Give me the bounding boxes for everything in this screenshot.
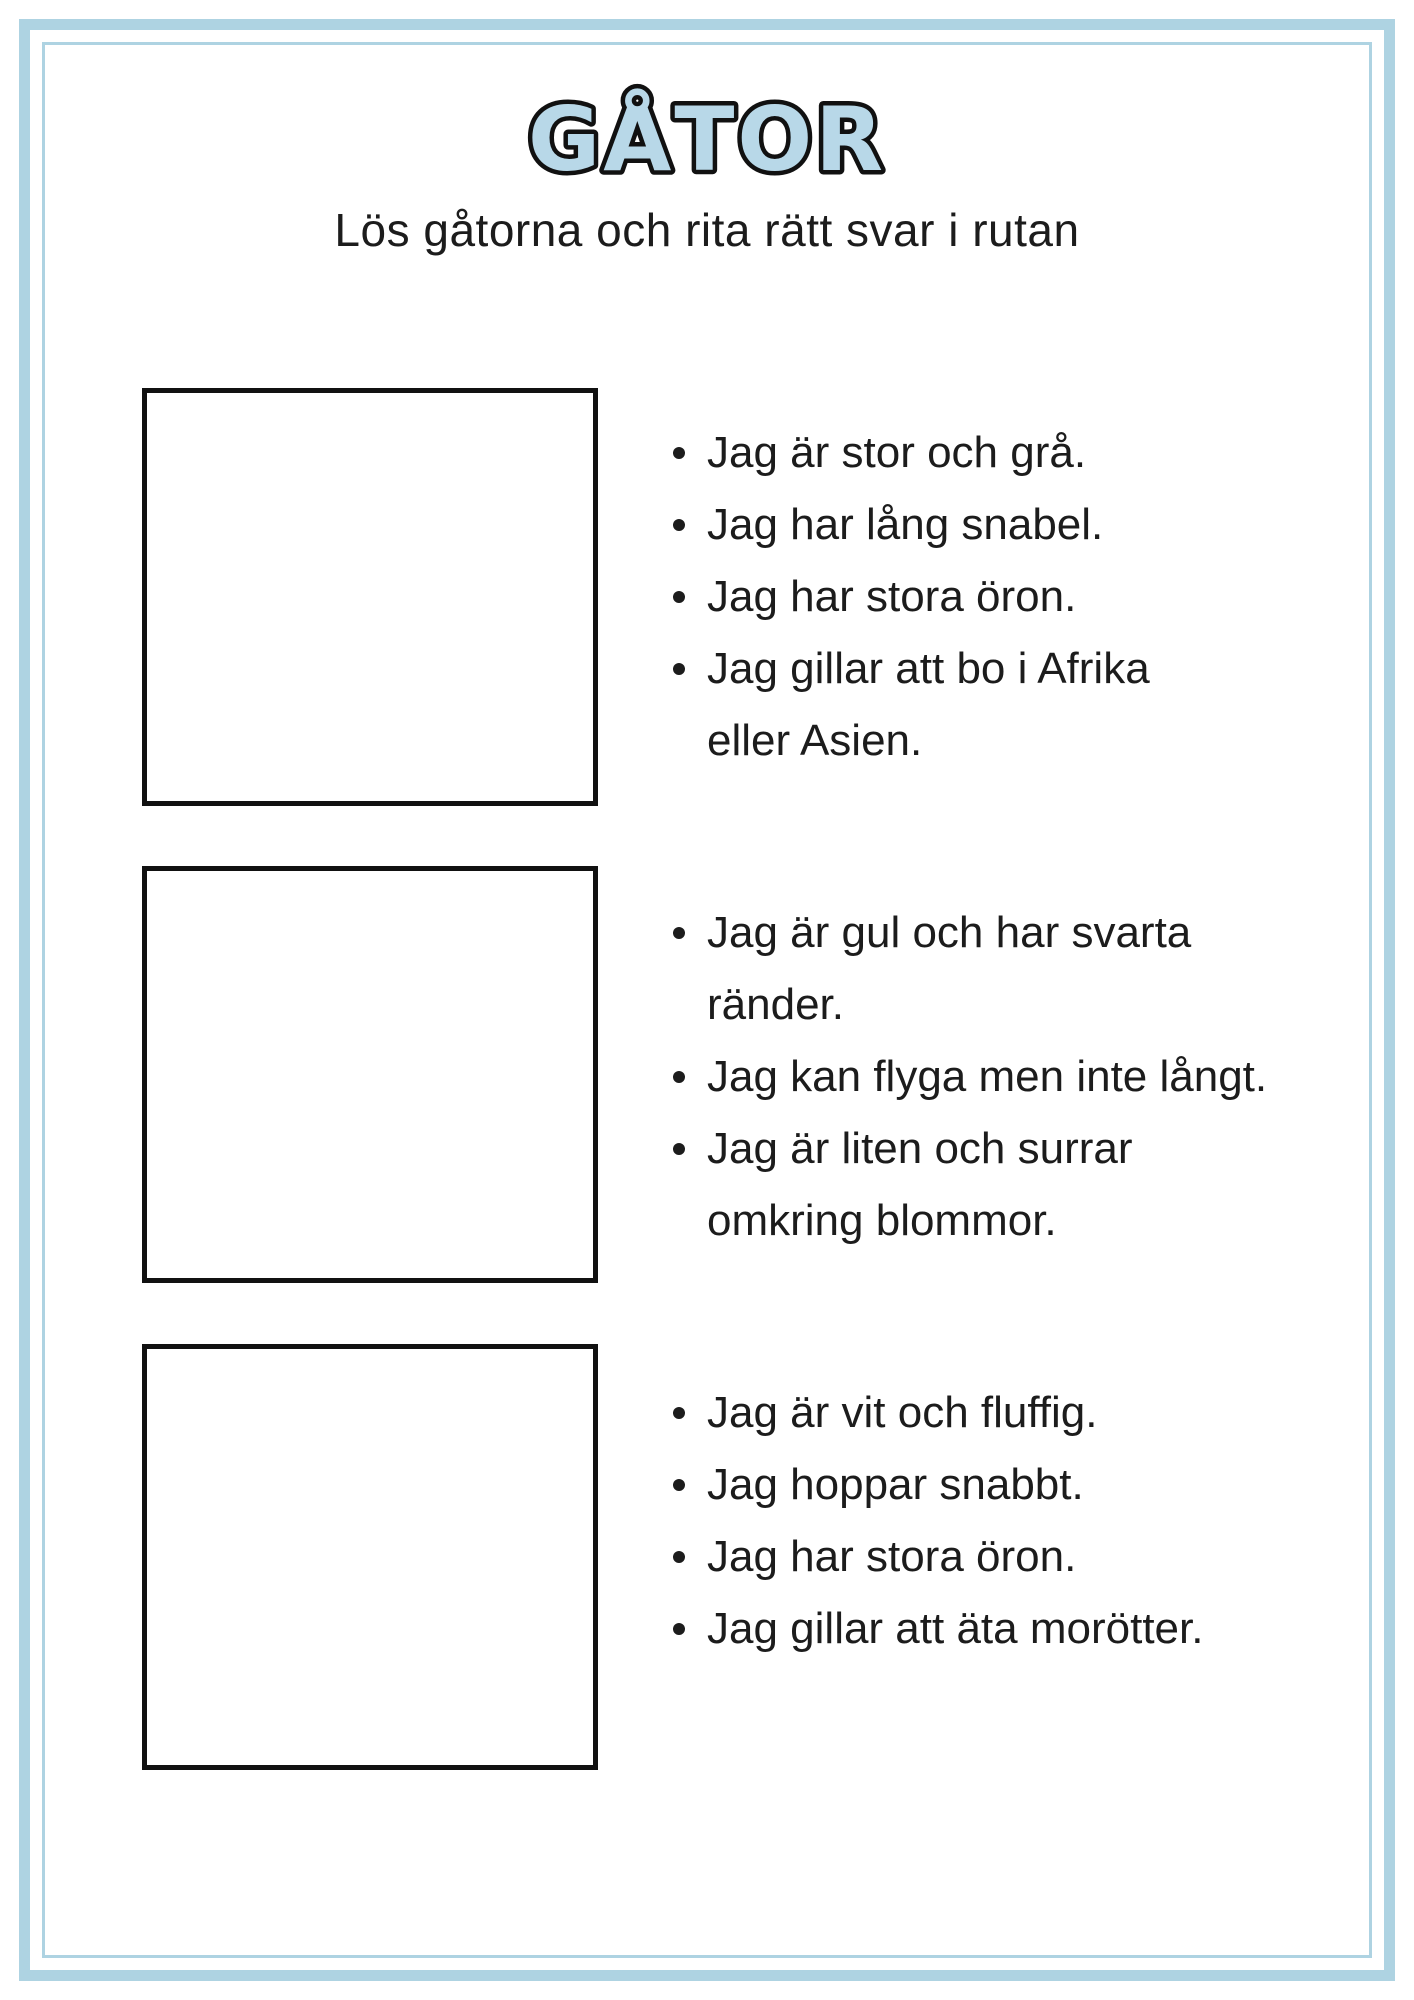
riddle-clue-text: Jag är gul och har svarta: [707, 897, 1355, 969]
bullet-spacer: [655, 1185, 707, 1257]
bullet-icon: [655, 897, 707, 969]
bullet-icon: [655, 1113, 707, 1185]
list-item: Jag är stor och grå.: [655, 417, 1355, 489]
riddle-clue-text: Jag gillar att bo i Afrika: [707, 633, 1355, 705]
riddle-clue-text: Jag gillar att äta morötter.: [707, 1593, 1355, 1665]
bullet-icon: [655, 1377, 707, 1449]
bullet-icon: [655, 1449, 707, 1521]
bullet-icon: [655, 489, 707, 561]
list-item: Jag gillar att äta morötter.: [655, 1593, 1355, 1665]
answer-box-1[interactable]: [142, 388, 598, 806]
riddle-clue-text: Jag är liten och surrar: [707, 1113, 1355, 1185]
list-item: Jag har stora öron.: [655, 1521, 1355, 1593]
bullet-icon: [655, 417, 707, 489]
riddle-clue-text: Jag har stora öron.: [707, 1521, 1355, 1593]
riddle-clue-text: eller Asien.: [707, 705, 1355, 777]
page-title: GÅTOR: [447, 52, 967, 202]
riddle-clue-text: Jag är vit och fluffig.: [707, 1377, 1355, 1449]
riddle-clue-text: Jag har lång snabel.: [707, 489, 1355, 561]
bullet-icon: [655, 1041, 707, 1113]
list-item: Jag är vit och fluffig.: [655, 1377, 1355, 1449]
riddle-clue-text: Jag kan flyga men inte långt.: [707, 1041, 1355, 1113]
answer-box-3[interactable]: [142, 1344, 598, 1770]
riddle-clue-text: Jag har stora öron.: [707, 561, 1355, 633]
riddle-list-3: Jag är vit och fluffig. Jag hoppar snabb…: [655, 1377, 1355, 1665]
list-item: Jag är gul och har svarta: [655, 897, 1355, 969]
riddle-list-2: Jag är gul och har svarta ränder. Jag ka…: [655, 897, 1355, 1257]
riddle-list-1: Jag är stor och grå. Jag har lång snabel…: [655, 417, 1355, 777]
bullet-icon: [655, 1593, 707, 1665]
riddle-clue-text: Jag hoppar snabbt.: [707, 1449, 1355, 1521]
bullet-icon: [655, 633, 707, 705]
bubble-title-graphic: GÅTOR: [447, 52, 967, 202]
list-item: Jag är liten och surrar: [655, 1113, 1355, 1185]
list-item: Jag har lång snabel.: [655, 489, 1355, 561]
bullet-spacer: [655, 705, 707, 777]
bullet-icon: [655, 561, 707, 633]
answer-box-2[interactable]: [142, 866, 598, 1283]
list-item: Jag gillar att bo i Afrika: [655, 633, 1355, 705]
riddle-clue-text: omkring blommor.: [707, 1185, 1355, 1257]
bullet-icon: [655, 1521, 707, 1593]
list-item: Jag kan flyga men inte långt.: [655, 1041, 1355, 1113]
list-item: Jag hoppar snabbt.: [655, 1449, 1355, 1521]
page-title-text: GÅTOR: [528, 88, 886, 191]
list-item: Jag har stora öron.: [655, 561, 1355, 633]
worksheet-page: GÅTOR Lös gåtorna och rita rätt svar i r…: [0, 0, 1414, 2000]
bullet-spacer: [655, 969, 707, 1041]
list-item-continuation: ränder.: [655, 969, 1355, 1041]
list-item-continuation: omkring blommor.: [655, 1185, 1355, 1257]
riddle-clue-text: ränder.: [707, 969, 1355, 1041]
instructions-text: Lös gåtorna och rita rätt svar i rutan: [0, 203, 1414, 257]
list-item-continuation: eller Asien.: [655, 705, 1355, 777]
riddle-clue-text: Jag är stor och grå.: [707, 417, 1355, 489]
